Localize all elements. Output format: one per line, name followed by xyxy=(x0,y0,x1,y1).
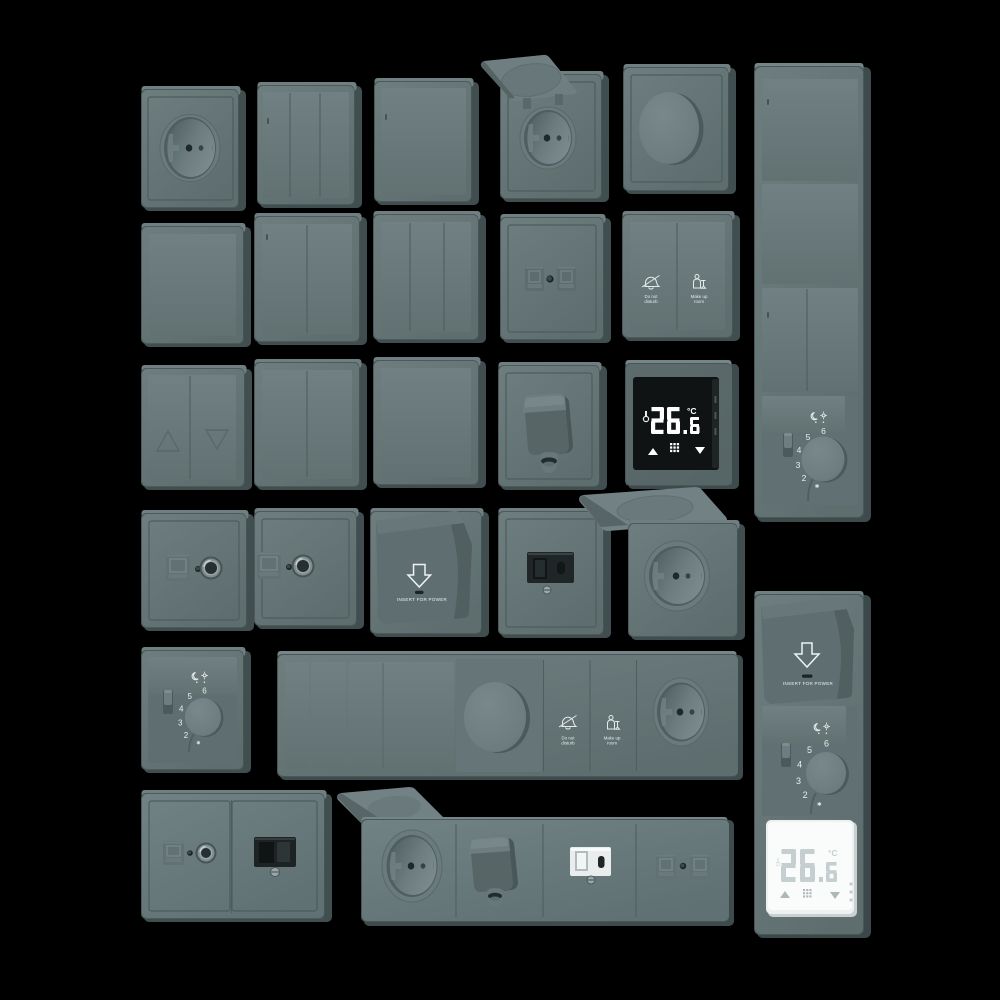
svg-text:3: 3 xyxy=(796,460,801,470)
svg-text:✱: ✱ xyxy=(196,741,200,747)
svg-text:2: 2 xyxy=(802,473,807,483)
svg-text:disturb: disturb xyxy=(644,299,658,304)
svg-text:INSERT FOR POWER: INSERT FOR POWER xyxy=(783,681,834,686)
svg-text:6: 6 xyxy=(821,426,826,436)
svg-text:disturb: disturb xyxy=(561,741,575,746)
svg-text:2: 2 xyxy=(184,731,189,740)
svg-text:6: 6 xyxy=(202,686,207,695)
svg-text:5: 5 xyxy=(807,745,812,755)
svg-text:2: 2 xyxy=(803,790,808,800)
svg-text:5: 5 xyxy=(806,432,811,442)
svg-text:4: 4 xyxy=(797,445,802,455)
svg-text:✱: ✱ xyxy=(817,801,822,808)
svg-text:5: 5 xyxy=(188,692,193,701)
svg-text:INSERT FOR POWER: INSERT FOR POWER xyxy=(397,597,448,602)
svg-text:room: room xyxy=(694,299,704,304)
svg-text:4: 4 xyxy=(179,704,184,713)
svg-text:°C: °C xyxy=(828,848,838,858)
svg-text:3: 3 xyxy=(796,776,801,786)
svg-text:4: 4 xyxy=(797,759,802,769)
svg-text:room: room xyxy=(607,741,617,746)
svg-text:3: 3 xyxy=(178,719,183,728)
svg-text:6: 6 xyxy=(824,738,829,748)
svg-text:✱: ✱ xyxy=(815,484,819,490)
svg-text:°C: °C xyxy=(687,406,697,416)
